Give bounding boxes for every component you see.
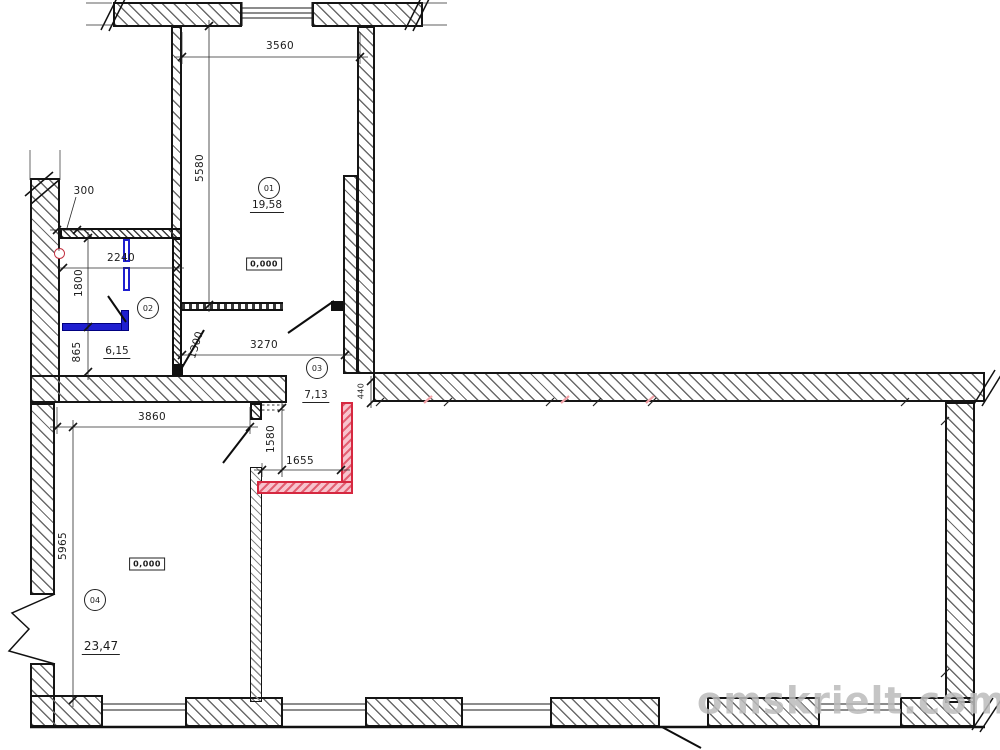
- room04-badge: 04: [84, 589, 106, 611]
- room03-badge: 03: [306, 357, 328, 379]
- room04-area: 23,47: [82, 639, 120, 655]
- dim-room04-width: 3860: [138, 411, 166, 423]
- room01-number: 01: [264, 184, 274, 193]
- labels-layer: 3560 5580 300 2240 1800 865 1300 3270 44…: [0, 0, 1000, 750]
- watermark: omskrielt.com: [697, 680, 1000, 723]
- room01-elevation-mark: 0,000: [246, 258, 282, 271]
- room03-number: 03: [312, 364, 322, 373]
- dim-room04-height: 5965: [57, 532, 69, 560]
- room02-area: 6,15: [103, 345, 130, 359]
- room03-area: 7,13: [302, 389, 329, 403]
- room04-number: 04: [90, 596, 100, 605]
- dim-top-width: 3560: [266, 40, 294, 52]
- room04-elevation-mark: 0,000: [129, 558, 165, 571]
- room01-badge: 01: [258, 177, 280, 199]
- dim-door-width: 1300: [186, 330, 206, 360]
- dim-room02-width: 2240: [107, 252, 135, 264]
- dim-room02-upper: 1800: [73, 269, 85, 297]
- dim-corridor-width: 3270: [250, 339, 278, 351]
- dim-room01-height: 5580: [194, 154, 206, 182]
- dim-opening: 440: [357, 383, 366, 399]
- dim-niche-height: 1580: [265, 425, 277, 453]
- dim-room02-lower: 865: [71, 342, 83, 363]
- room01-area: 19,58: [250, 199, 284, 213]
- dim-wall-offset: 300: [74, 185, 95, 197]
- dim-niche-width: 1655: [286, 455, 314, 467]
- floor-plan-canvas: 3560 5580 300 2240 1800 865 1300 3270 44…: [0, 0, 1000, 750]
- room02-badge: 02: [137, 297, 159, 319]
- room02-number: 02: [143, 304, 153, 313]
